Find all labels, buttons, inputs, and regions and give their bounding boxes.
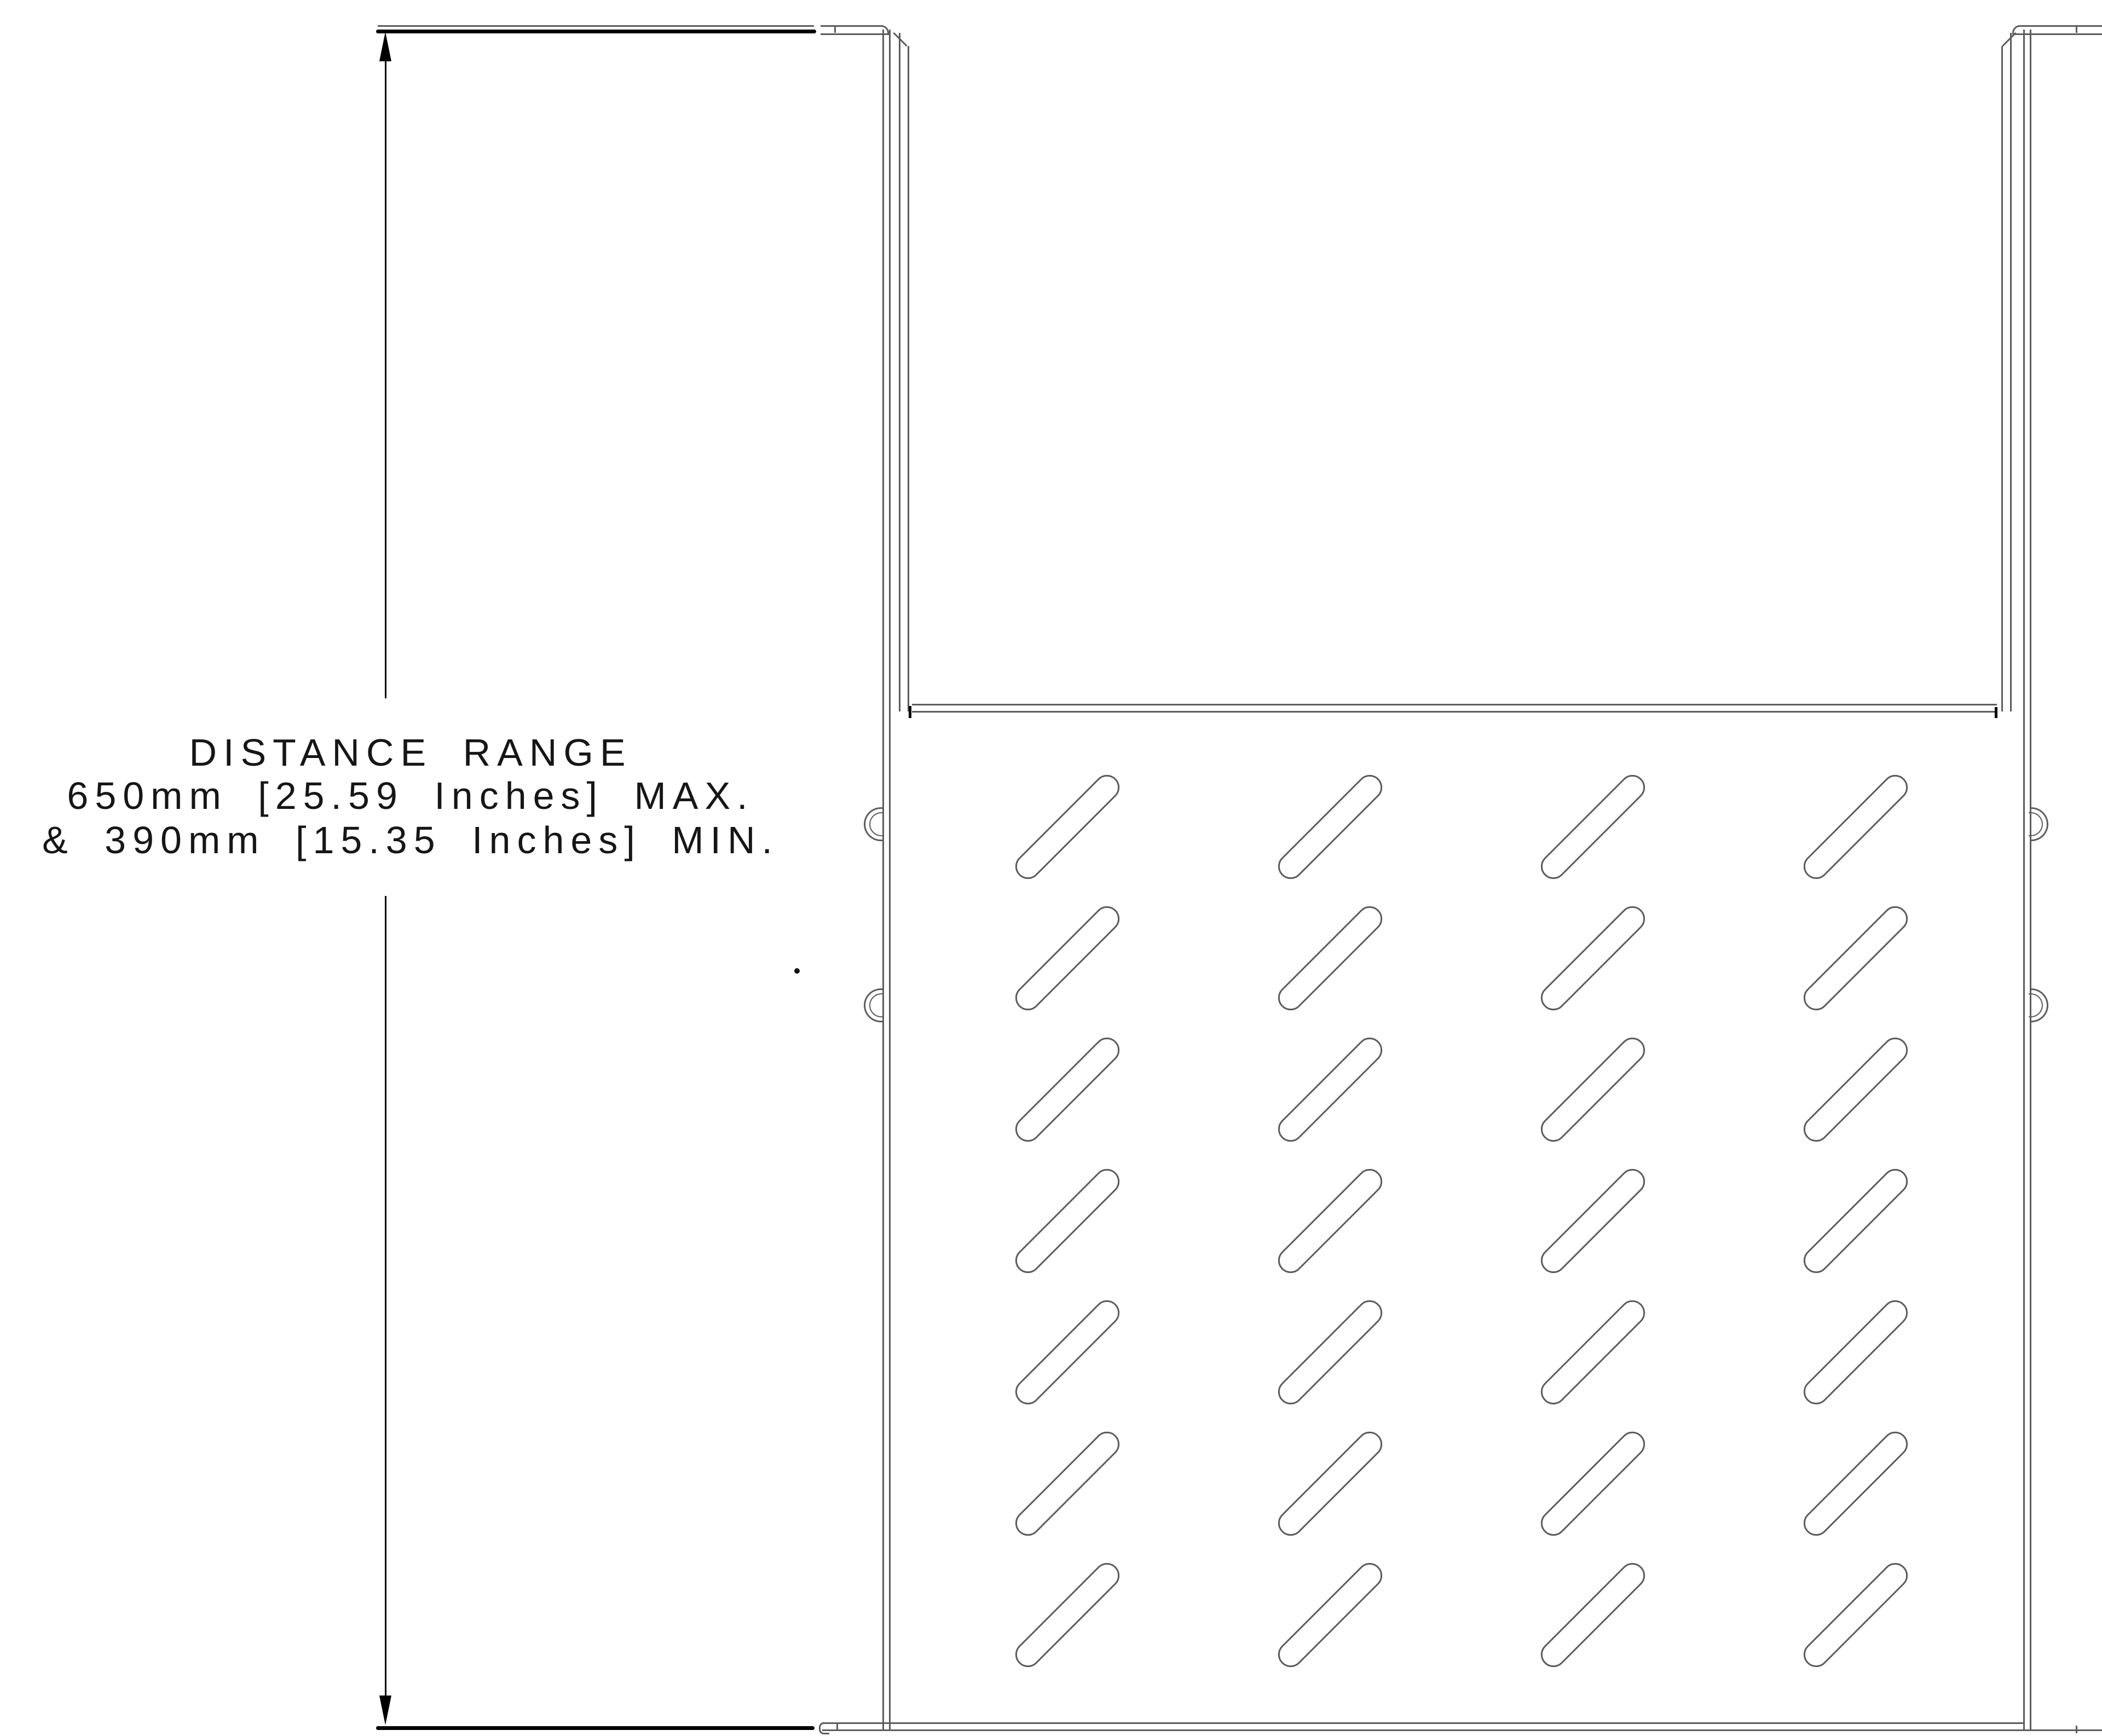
vent-slot	[1535, 769, 1650, 884]
dimension-text-line-1: DISTANCE RANGE	[0, 733, 821, 773]
dimension-line-lower-segment	[385, 896, 386, 1698]
mounting-ear-left-upper	[864, 807, 882, 841]
left-rail-and-shelf-left-edge-outer-line	[882, 30, 884, 1729]
shelf-bottom-left-tab-break-tick	[836, 1722, 838, 1731]
shelf-bottom-edge-line-upper	[822, 1722, 2023, 1724]
vent-slot	[1535, 1558, 1650, 1672]
shelf-top-edge-end-tick-right	[1995, 707, 1997, 718]
right-rail-top-chamfer	[2002, 32, 2016, 47]
vent-slot	[1535, 1032, 1650, 1147]
extension-line-bottom-thick	[376, 1726, 815, 1730]
vent-slot	[1010, 1164, 1124, 1278]
dimension-arrow-bottom-icon	[379, 1696, 391, 1725]
vent-slot	[1535, 901, 1650, 1015]
vent-slot	[1798, 1426, 1913, 1541]
vent-slot	[1535, 1426, 1650, 1541]
dimension-line-upper-segment	[385, 59, 386, 698]
vent-slot	[1798, 901, 1913, 1015]
shelf-bottom-edge-line-lower	[822, 1729, 2102, 1731]
vent-slot	[1273, 1164, 1387, 1278]
vent-slot	[1798, 1032, 1913, 1147]
scan-speck-artifact	[794, 968, 800, 974]
vent-slot	[1798, 1295, 1913, 1409]
vent-slot	[1010, 1295, 1124, 1409]
vent-slot	[1273, 901, 1387, 1015]
vent-slot	[1798, 769, 1913, 884]
vent-slot	[1010, 1426, 1124, 1541]
right-rail-top-tab	[2012, 25, 2102, 35]
right-rail-and-shelf-right-edge-outer-line	[2030, 30, 2031, 1731]
vent-slot	[1798, 1558, 1913, 1672]
mounting-ear-right-lower	[2030, 988, 2048, 1022]
left-rail-tab-break-tick	[834, 25, 836, 33]
mounting-ear-right-upper	[2030, 807, 2048, 841]
dimension-text-line-3: & 390mm [15.35 Inches] MIN.	[0, 821, 821, 860]
vent-slot	[1798, 1164, 1913, 1278]
left-rail-top-tab	[821, 25, 889, 35]
vent-slot	[1010, 901, 1124, 1015]
vent-slot	[1273, 1032, 1387, 1147]
shelf-bottom-left-tab-cap	[819, 1722, 829, 1734]
right-rail-middle-line	[2010, 33, 2012, 711]
technical-drawing-canvas: DISTANCE RANGE 650mm [25.59 Inches] MAX.…	[0, 0, 2102, 1736]
vent-slot	[1273, 1426, 1387, 1541]
right-rail-and-shelf-right-edge-inner-line	[2023, 30, 2025, 1731]
vent-slot	[1010, 1032, 1124, 1147]
shelf-top-edge-line-upper	[912, 704, 1997, 705]
dimension-text-line-2: 650mm [25.59 Inches] MAX.	[0, 777, 821, 816]
left-rail-middle-line	[899, 33, 900, 711]
mounting-ear-left-lower	[864, 988, 882, 1022]
extension-line-top-thin	[378, 25, 814, 27]
vent-slot	[1535, 1164, 1650, 1278]
right-rail-tab-break-tick	[2076, 25, 2077, 33]
vent-slot	[1273, 1558, 1387, 1672]
shelf-top-edge-end-tick-left	[909, 706, 911, 718]
vent-slot	[1273, 1295, 1387, 1409]
shelf-bottom-right-break-tick	[2076, 1726, 2077, 1733]
left-rail-outer-right-line	[908, 46, 909, 711]
right-rail-outer-left-line	[2001, 46, 2003, 711]
extension-line-top-thick	[376, 30, 816, 33]
vent-slot	[1010, 1558, 1124, 1672]
left-rail-and-shelf-left-edge-inner-line	[889, 30, 891, 1729]
shelf-top-edge-line-lower	[912, 711, 1997, 713]
vent-slot	[1273, 769, 1387, 884]
vent-slot	[1010, 769, 1124, 884]
vent-slot	[1535, 1295, 1650, 1409]
dimension-arrow-top-icon	[379, 32, 391, 61]
